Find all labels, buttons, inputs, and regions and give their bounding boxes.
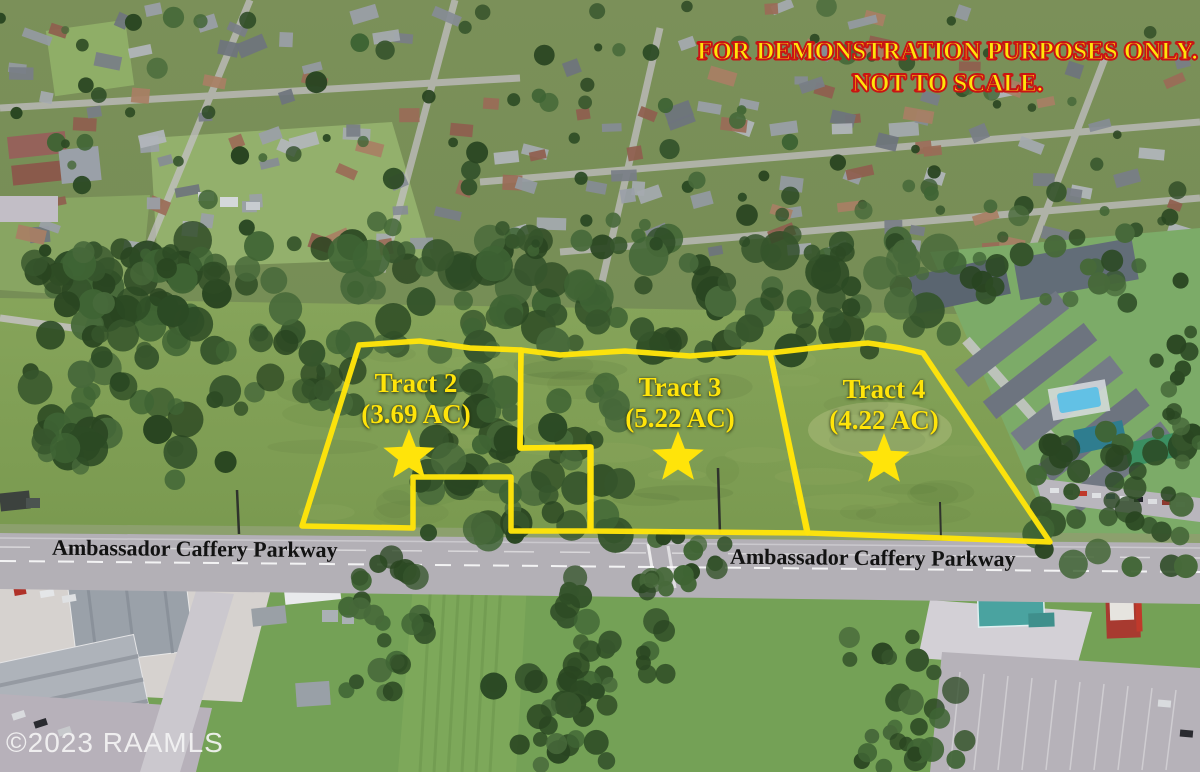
tract-4-label: Tract 4 (4.22 AC) [800, 374, 968, 437]
tract-3-acreage: (5.22 AC) [596, 403, 764, 434]
tract-4-star-icon [858, 433, 909, 482]
road-label-right: Ambassador Caffery Parkway [730, 544, 1016, 572]
tract-2-star-icon [383, 429, 434, 478]
tract-4-boundary [770, 343, 1050, 542]
tract-2-label: Tract 2 (3.69 AC) [332, 368, 500, 431]
tract-3-name: Tract 3 [596, 372, 764, 403]
watermark: ©2023 RAAMLS [6, 727, 224, 759]
tract-4-acreage: (4.22 AC) [800, 405, 968, 436]
tract-2-name: Tract 2 [332, 368, 500, 399]
disclaimer-note: FOR DEMONSTRATION PURPOSES ONLY. NOT TO … [690, 36, 1200, 100]
tract-3-star-icon [652, 431, 703, 480]
disclaimer-line-1: FOR DEMONSTRATION PURPOSES ONLY. [690, 36, 1200, 68]
disclaimer-line-2: NOT TO SCALE. [690, 68, 1200, 100]
tract-2-acreage: (3.69 AC) [332, 399, 500, 430]
aerial-site-map: FOR DEMONSTRATION PURPOSES ONLY. NOT TO … [0, 0, 1200, 772]
tract-4-name: Tract 4 [800, 374, 968, 405]
road-label-left: Ambassador Caffery Parkway [52, 535, 338, 563]
tract-3-label: Tract 3 (5.22 AC) [596, 372, 764, 435]
